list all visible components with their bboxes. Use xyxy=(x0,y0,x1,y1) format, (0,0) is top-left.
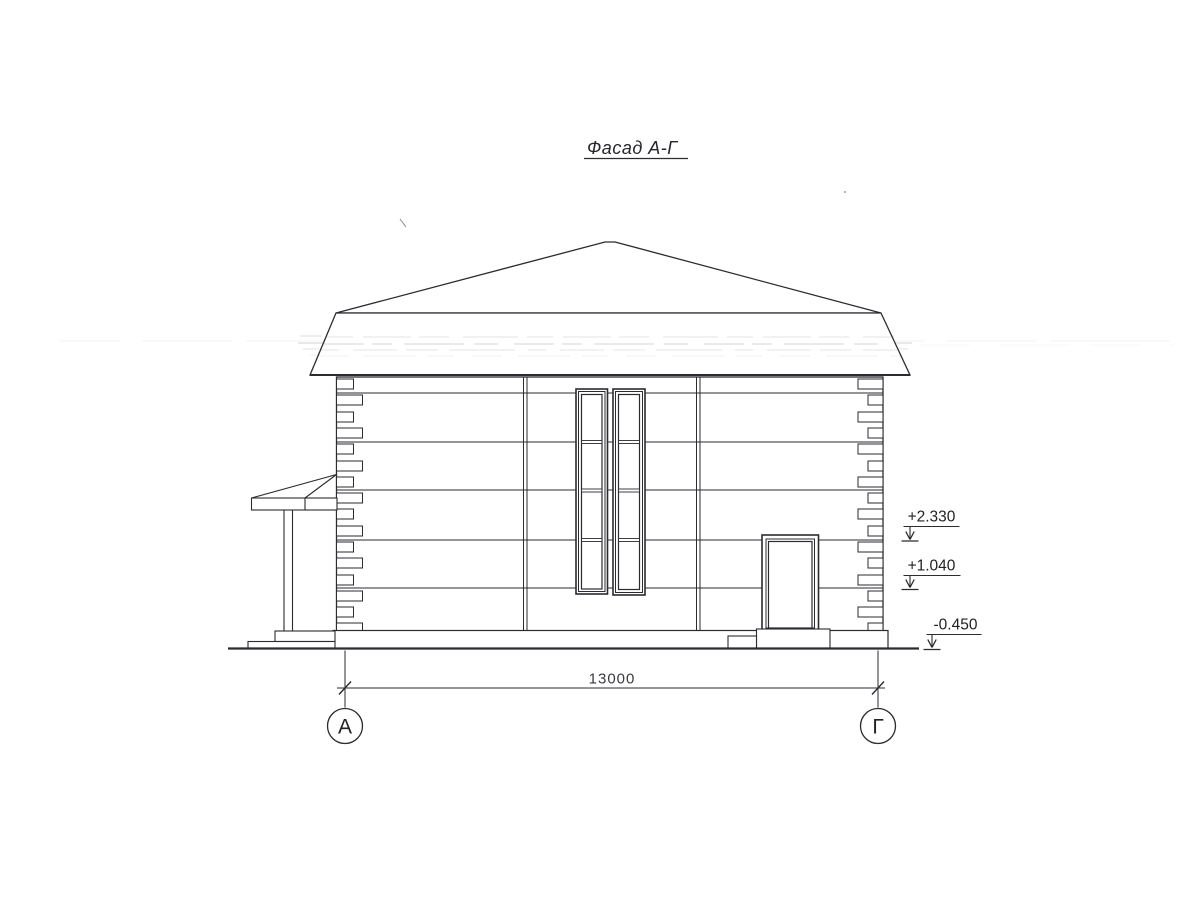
log-end xyxy=(337,526,363,536)
scan-speck xyxy=(400,219,406,227)
log-end xyxy=(337,493,363,503)
door-step xyxy=(728,636,757,649)
log-end xyxy=(868,395,883,405)
log-end xyxy=(337,395,363,405)
canopy-fascia xyxy=(252,498,338,510)
elevation-mark-1: +2.330 xyxy=(902,509,960,542)
log-end xyxy=(337,558,363,568)
dimension: 13000 А Г xyxy=(328,651,896,744)
dimension-label: 13000 xyxy=(589,671,636,688)
log-end xyxy=(868,623,883,631)
log-end xyxy=(858,607,883,617)
blueprint-page: +2.330 +1.040 -0.450 xyxy=(0,0,1200,900)
log-end xyxy=(337,607,354,617)
elevation-mark-2: +1.040 xyxy=(902,558,961,590)
porch-steps xyxy=(248,631,335,649)
facade-drawing: +2.330 +1.040 -0.450 xyxy=(0,0,1200,900)
window-left xyxy=(576,389,608,594)
elevation-mark-label: +1.040 xyxy=(908,558,956,575)
elevation-mark-label: -0.450 xyxy=(934,617,978,634)
window-right xyxy=(613,389,645,595)
axis-marker-a: А xyxy=(328,709,363,744)
window-muntin xyxy=(582,539,603,542)
log-end xyxy=(337,379,354,389)
log-end xyxy=(868,591,883,601)
log-end xyxy=(337,477,354,487)
log-end xyxy=(858,542,883,552)
elevation-mark-label: +2.330 xyxy=(908,509,956,526)
level-arrow-icon xyxy=(928,640,932,648)
roof xyxy=(310,242,910,375)
log-end xyxy=(337,591,363,601)
log-end xyxy=(858,412,883,422)
step-upper xyxy=(275,631,335,642)
log-end xyxy=(868,526,883,536)
log-end xyxy=(337,428,363,438)
log-end xyxy=(337,623,363,631)
door-stoop xyxy=(757,629,831,649)
drawing-title: Фасад А-Г xyxy=(587,138,678,158)
drawing-title-block: Фасад А-Г xyxy=(584,138,688,159)
porch xyxy=(248,475,337,649)
log-end xyxy=(868,461,883,471)
log-end xyxy=(337,542,354,552)
log-end xyxy=(858,509,883,519)
level-arrow-icon xyxy=(906,580,910,588)
log-end xyxy=(337,509,354,519)
window-muntin xyxy=(582,489,603,492)
log-end xyxy=(868,493,883,503)
window-muntin xyxy=(619,539,640,542)
axis-label: Г xyxy=(872,716,883,739)
window-muntin xyxy=(619,489,640,492)
level-arrow-icon xyxy=(906,532,910,540)
scan-speck xyxy=(844,191,846,193)
elevation-marks: +2.330 +1.040 -0.450 xyxy=(902,509,982,650)
log-end xyxy=(337,444,354,454)
log-end xyxy=(337,461,363,471)
axis-marker-g: Г xyxy=(861,709,896,744)
window-muntin xyxy=(582,441,603,444)
log-end xyxy=(858,575,883,585)
log-end xyxy=(337,412,354,422)
log-end xyxy=(337,575,354,585)
porch-canopy xyxy=(252,475,338,511)
log-end xyxy=(868,428,883,438)
log-end xyxy=(868,558,883,568)
elevation-mark-3: -0.450 xyxy=(924,617,982,650)
window-muntin xyxy=(619,441,640,444)
roof-hip-top xyxy=(336,242,881,313)
log-end xyxy=(858,444,883,454)
log-end xyxy=(858,379,883,389)
log-end xyxy=(858,477,883,487)
foundation xyxy=(333,629,888,649)
axis-label: А xyxy=(338,716,352,739)
porch-post xyxy=(284,510,293,631)
door xyxy=(762,535,819,631)
